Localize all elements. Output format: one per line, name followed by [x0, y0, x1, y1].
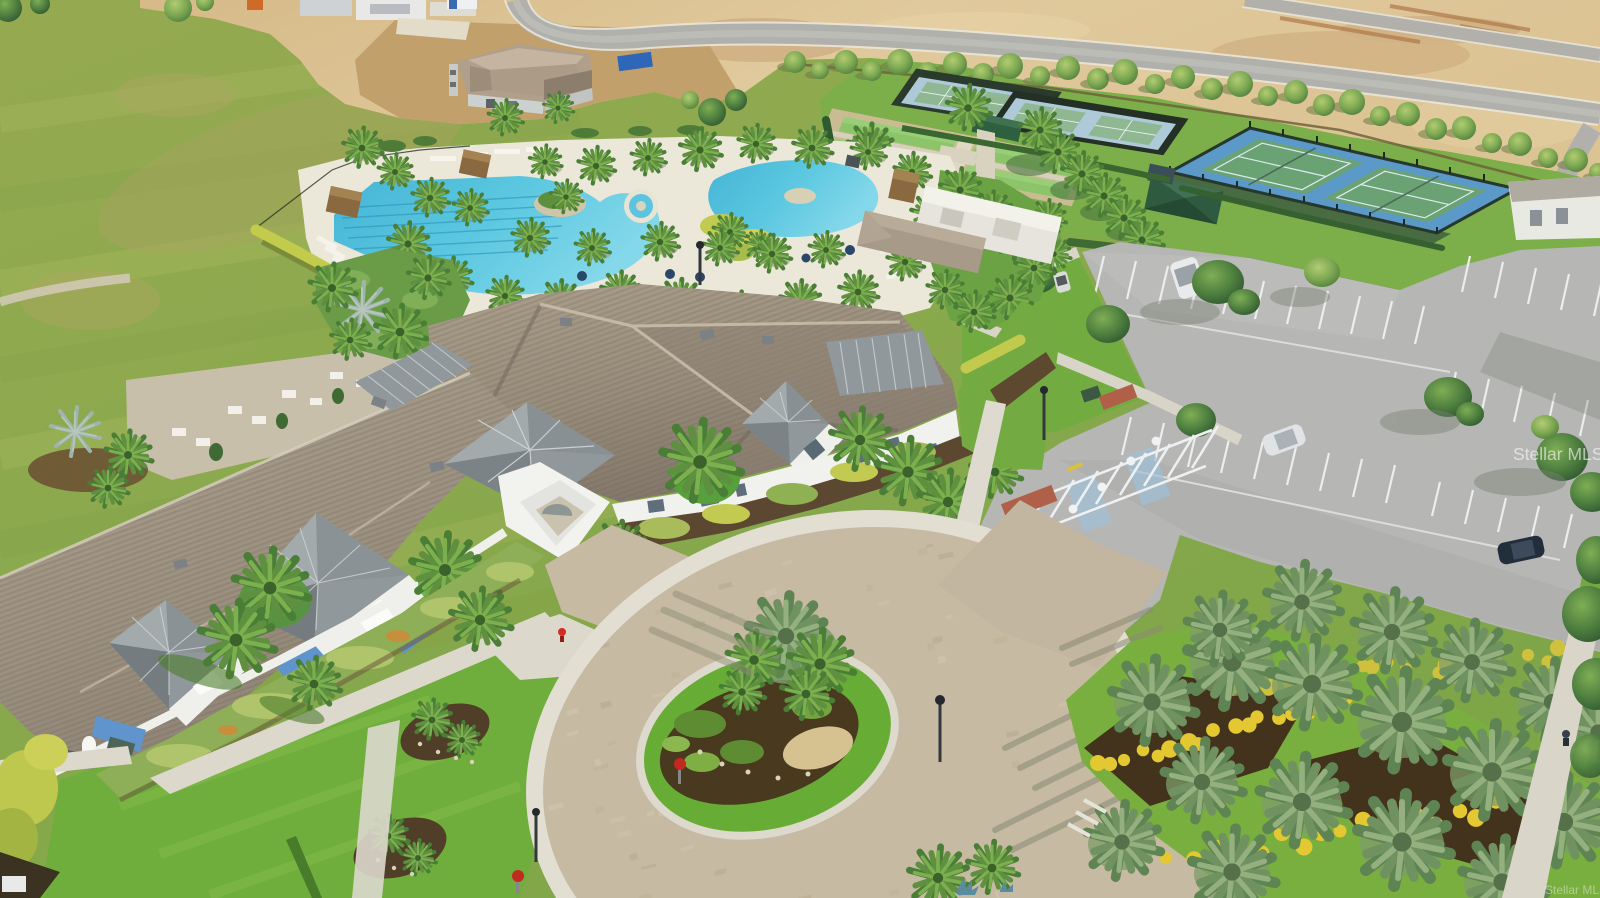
svg-text:Stellar MLS: Stellar MLS [1545, 883, 1600, 897]
svg-text:Stellar MLS: Stellar MLS [1513, 444, 1600, 464]
